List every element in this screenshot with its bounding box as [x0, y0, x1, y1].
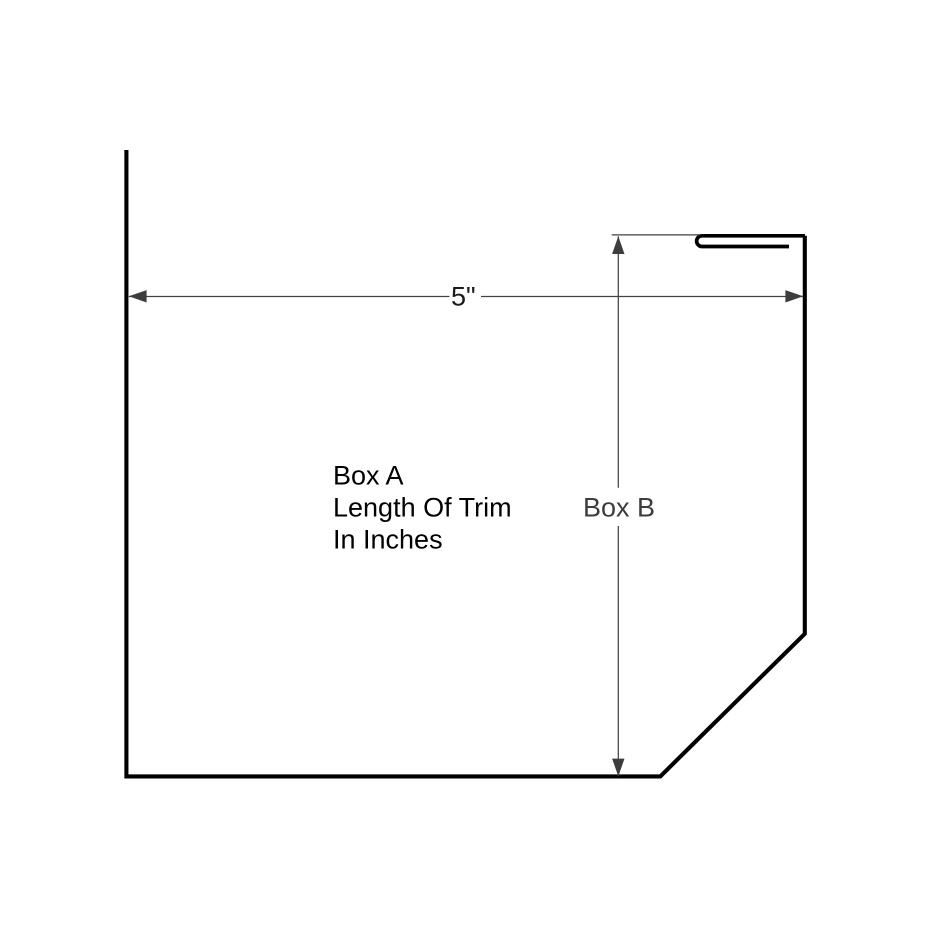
- svg-text:Length Of Trim: Length Of Trim: [333, 493, 512, 523]
- svg-text:Box A: Box A: [333, 461, 404, 491]
- svg-text:5": 5": [451, 282, 476, 312]
- svg-text:In Inches: In Inches: [333, 525, 443, 555]
- svg-text:Box B: Box B: [583, 493, 655, 523]
